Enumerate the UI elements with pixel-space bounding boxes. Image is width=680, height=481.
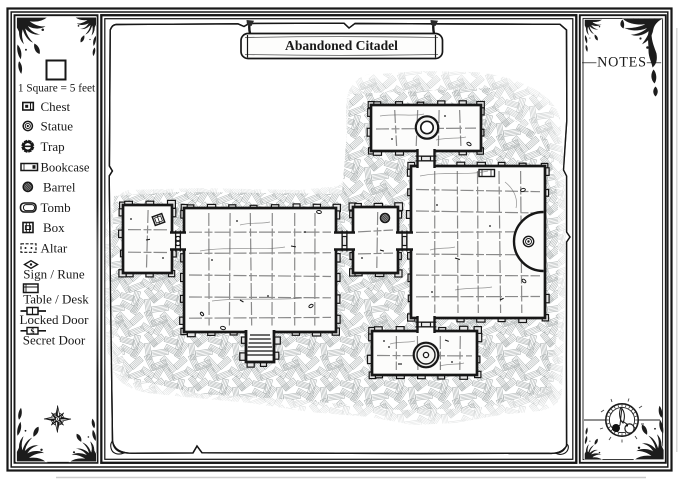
svg-text:Secret Door: Secret Door — [23, 333, 86, 348]
svg-text:Barrel: Barrel — [43, 179, 76, 194]
svg-text:Sign / Rune: Sign / Rune — [23, 267, 85, 282]
svg-text:Tomb: Tomb — [41, 200, 71, 215]
svg-text:Statue: Statue — [41, 119, 74, 134]
svg-text:—NOTES—: —NOTES— — [581, 55, 662, 71]
svg-text:Box: Box — [43, 220, 65, 235]
svg-text:Abandoned Citadel: Abandoned Citadel — [285, 38, 398, 53]
svg-text:Table / Desk: Table / Desk — [23, 292, 89, 307]
svg-text:Trap: Trap — [41, 139, 65, 154]
svg-text:Bookcase: Bookcase — [41, 160, 90, 174]
svg-text:Chest: Chest — [41, 99, 71, 114]
svg-text:1 Square = 5 feet: 1 Square = 5 feet — [18, 83, 96, 95]
svg-text:Locked Door: Locked Door — [20, 312, 90, 327]
svg-text:Altar: Altar — [41, 241, 68, 256]
